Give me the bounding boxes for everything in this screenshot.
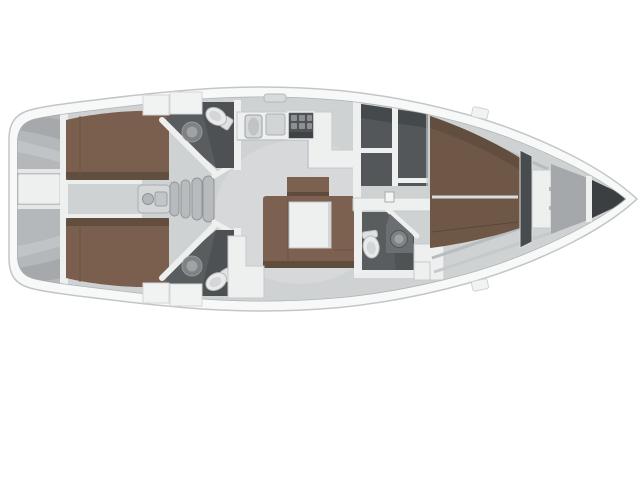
- deck-box-port-2: [170, 92, 202, 114]
- berth-starboard: [66, 218, 169, 287]
- forepeak-divider: [586, 176, 592, 222]
- burner: [299, 115, 305, 121]
- head-stbd-sink-basin: [187, 261, 198, 272]
- fwd-head-sink-basin: [395, 235, 404, 244]
- corridor-wall-top: [62, 180, 142, 184]
- stern-shelf-line-top: [17, 169, 62, 173]
- stern-platform: Stern swim platform and transom lockers: [17, 104, 68, 294]
- berth-starboard-head-shadow: [66, 218, 169, 226]
- locker-shelf-right: [398, 178, 428, 183]
- burner: [307, 115, 312, 121]
- step-3: [192, 178, 202, 220]
- steering-wheel: [143, 194, 154, 205]
- salon-fwd-bulkhead: [353, 100, 361, 198]
- corridor-wall-bottom: [62, 214, 142, 218]
- transom-locker-panel: [18, 174, 60, 204]
- burner: [291, 115, 297, 121]
- burner: [291, 123, 297, 129]
- deck-hatch-mid: [264, 94, 286, 102]
- locker-shelf-left: [361, 148, 392, 153]
- galley-worktop-board: [266, 114, 285, 135]
- stern-shelf-line-bottom: [17, 205, 62, 209]
- bow-cabinet: [532, 170, 551, 228]
- fwd-head-left-wall: [354, 210, 362, 274]
- companionway-steps: [170, 176, 214, 222]
- aft-cabin-port: Aft double cabin (port): [66, 111, 169, 180]
- engine-hatch: [155, 192, 167, 206]
- stove-oven: [289, 132, 313, 138]
- berth-port: [66, 111, 169, 180]
- deck-box-stbd-1: [143, 283, 169, 303]
- fwd-bulkhead-dark: [520, 150, 532, 248]
- aft-cabin-starboard: Aft double cabin (starboard): [66, 218, 169, 287]
- deck-box-port-1: [143, 95, 169, 115]
- salon-bench-edge: [287, 192, 329, 196]
- deck-box-stbd-2: [170, 284, 202, 306]
- step-2: [181, 180, 190, 218]
- step-1: [170, 182, 179, 216]
- salon-table: [289, 202, 331, 248]
- step-4: [203, 176, 214, 222]
- burner: [307, 123, 312, 129]
- lockers-right-edge: [426, 112, 430, 188]
- galley-stove: [288, 112, 314, 139]
- locker-divider-vertical: [392, 107, 398, 186]
- head-port-sink-basin: [187, 127, 198, 138]
- salon-table-shadow: [328, 202, 331, 248]
- berth-port-foot-shadow: [66, 172, 169, 180]
- yacht-layout-plan: Sailing yacht interior layout plan, top …: [0, 0, 640, 480]
- mast-post: Mast post: [385, 192, 394, 202]
- yacht-floor-plan-page: Sailing yacht interior layout plan, top …: [0, 0, 640, 480]
- burner: [299, 123, 305, 129]
- fwd-head-bottom-wall: [354, 270, 416, 278]
- galley-sink-basin: [248, 118, 259, 136]
- settee-bottom-shadow: [263, 261, 355, 268]
